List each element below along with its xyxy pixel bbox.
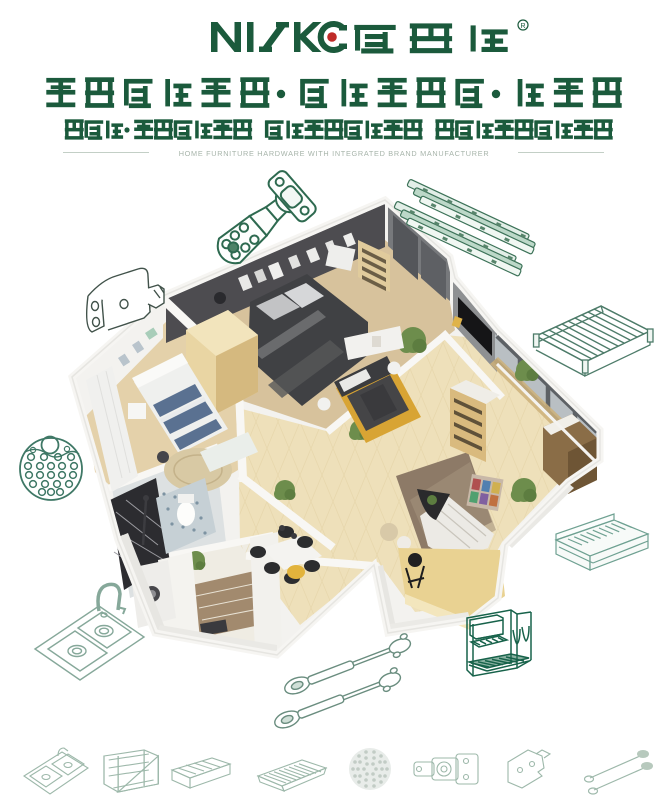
svg-text:R: R — [520, 23, 525, 30]
svg-text:HOME FURNITURE HARDWARE WITH I: HOME FURNITURE HARDWARE WITH INTEGRATED … — [179, 149, 490, 158]
